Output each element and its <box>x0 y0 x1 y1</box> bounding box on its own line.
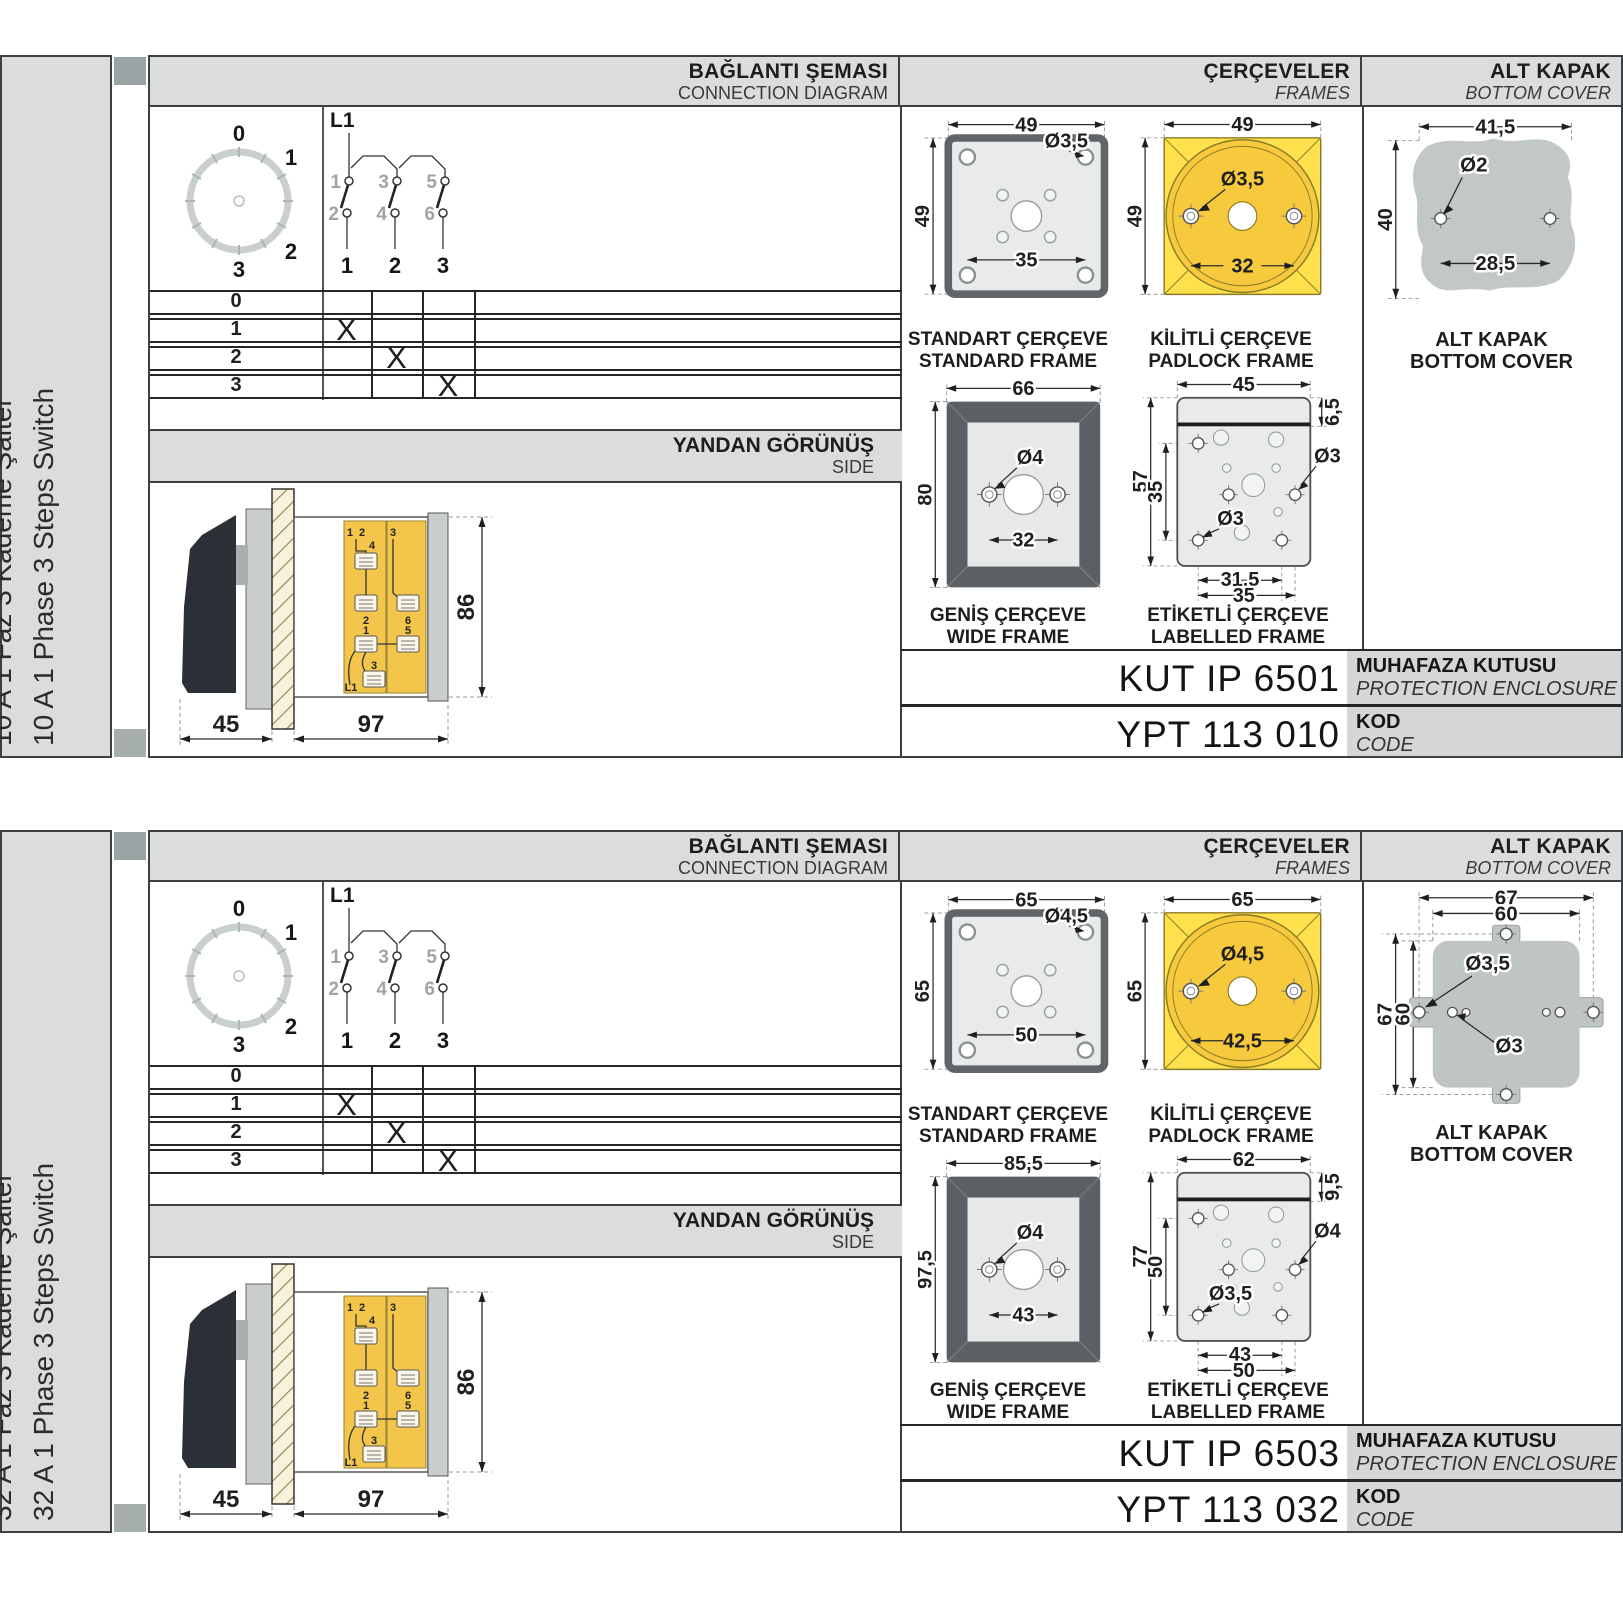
enclosure-label: MUHAFAZA KUTUSU PROTECTION ENCLOSURE <box>1347 1426 1621 1479</box>
svg-text:60: 60 <box>1391 1003 1414 1026</box>
switching-truth-table: 0 1 X 2 X 3 X <box>150 290 902 400</box>
svg-text:1: 1 <box>330 947 341 968</box>
svg-text:43: 43 <box>1012 1305 1034 1327</box>
wide-frame-caption: GENİŞ ÇERÇEVE WIDE FRAME <box>902 1380 1114 1424</box>
product-section-32a: 32 A 1 Faz 3 Kademe Şalter 32 A 1 Phase … <box>0 830 1623 1535</box>
svg-text:Ø4: Ø4 <box>1017 447 1044 469</box>
svg-text:2: 2 <box>328 979 339 1000</box>
svg-text:Ø4,5: Ø4,5 <box>1221 944 1264 966</box>
enclosure-code: KUT IP 6503 <box>900 1433 1340 1475</box>
dial-pos-1: 1 <box>285 145 297 170</box>
svg-text:1: 1 <box>363 1400 369 1412</box>
svg-text:3: 3 <box>390 527 396 539</box>
section-header-row: BAĞLANTI ŞEMASI CONNECTION DIAGRAM ÇERÇE… <box>150 57 1621 107</box>
svg-text:86: 86 <box>453 1369 480 1396</box>
svg-text:Ø4: Ø4 <box>1314 1220 1341 1242</box>
svg-text:Ø2: Ø2 <box>1460 154 1487 177</box>
order-code: YPT 113 032 <box>900 1489 1340 1531</box>
header-frames-en: FRAMES <box>900 83 1350 103</box>
svg-text:42,5: 42,5 <box>1223 1030 1262 1052</box>
svg-text:Ø3,5: Ø3,5 <box>1209 1283 1252 1305</box>
bottom-cover-drawing: 67 60 67 60 Ø3,5 Ø3 <box>1370 888 1615 1118</box>
svg-text:1: 1 <box>285 920 297 945</box>
header-connection-en: CONNECTION DIAGRAM <box>150 83 888 103</box>
standard-frame-drawing: 49 49 Ø3,5 35 <box>914 113 1114 323</box>
table-row: 0 <box>150 290 902 315</box>
table-row: 0 <box>150 1065 902 1090</box>
dim-height: 86 <box>453 594 480 621</box>
svg-text:35: 35 <box>1145 481 1167 503</box>
svg-text:40: 40 <box>1376 208 1397 231</box>
svg-text:45: 45 <box>213 1486 240 1513</box>
selector-dial-drawing: 0 1 2 3 <box>159 892 319 1060</box>
svg-text:3: 3 <box>371 1435 377 1447</box>
bottom-cover-caption: ALT KAPAK BOTTOM COVER <box>1362 329 1621 373</box>
dial-pos-0: 0 <box>233 121 245 146</box>
svg-text:9,5: 9,5 <box>1322 1173 1344 1201</box>
svg-text:L1: L1 <box>330 884 355 907</box>
table-row: 2 X <box>150 346 902 371</box>
contact-3: 3 <box>378 172 389 193</box>
svg-text:66: 66 <box>1012 378 1034 400</box>
svg-text:6,5: 6,5 <box>1322 398 1344 426</box>
contact-1: 1 <box>330 172 341 193</box>
wide-frame-drawing: 66 80 Ø4 32 <box>918 377 1108 595</box>
svg-text:49: 49 <box>1015 114 1037 136</box>
contact-6: 6 <box>424 204 435 225</box>
svg-text:L1: L1 <box>345 682 358 694</box>
svg-text:1: 1 <box>363 625 369 637</box>
header-connection-diagram: BAĞLANTI ŞEMASI CONNECTION DIAGRAM <box>150 832 900 882</box>
enclosure-code: KUT IP 6501 <box>900 658 1340 700</box>
svg-text:2: 2 <box>389 1028 401 1053</box>
svg-text:32: 32 <box>1231 255 1253 277</box>
product-title-en: 10 A 1 Phase 3 Steps Switch <box>28 388 60 746</box>
svg-text:60: 60 <box>1495 902 1518 925</box>
svg-text:45: 45 <box>1233 375 1255 396</box>
svg-text:2: 2 <box>285 1014 297 1039</box>
header-frames: ÇERÇEVELER FRAMES <box>900 57 1362 107</box>
svg-text:3: 3 <box>371 660 377 672</box>
catalog-page: 10 A 1 Faz 3 Kademe Şalter 10 A 1 Phase … <box>0 0 1623 1623</box>
standard-frame-caption: STANDART ÇERÇEVE STANDARD FRAME <box>902 329 1114 373</box>
connection-circuit-drawing: L1 1 3 5 2 4 6 1 2 3 <box>322 884 572 1069</box>
svg-text:35: 35 <box>1233 585 1255 603</box>
svg-text:85,5: 85,5 <box>1004 1153 1043 1175</box>
spine-tab-bottom <box>114 1504 146 1532</box>
svg-text:65: 65 <box>1015 889 1037 911</box>
wide-frame-drawing: 85,5 97,5 Ø4 43 <box>918 1152 1108 1370</box>
labelled-frame-caption: ETİKETLİ ÇERÇEVE LABELLED FRAME <box>1118 605 1358 649</box>
svg-text:Ø3: Ø3 <box>1495 1034 1522 1057</box>
contact-4: 4 <box>376 204 387 225</box>
svg-text:5: 5 <box>426 947 437 968</box>
wide-frame-caption: GENİŞ ÇERÇEVE WIDE FRAME <box>902 605 1114 649</box>
selector-dial-drawing: 0 1 2 3 <box>159 117 319 285</box>
header-bottom-cover: ALT KAPAK BOTTOM COVER <box>1362 832 1621 882</box>
pole-2: 2 <box>389 253 401 278</box>
section-content: BAĞLANTI ŞEMASI CONNECTION DIAGRAM ÇERÇE… <box>148 830 1623 1533</box>
svg-text:4: 4 <box>369 1315 376 1327</box>
header-frames: ÇERÇEVELER FRAMES <box>900 832 1362 882</box>
svg-text:1: 1 <box>347 1302 353 1314</box>
labelled-frame-drawing: 45 6,5 Ø3 57 35 Ø3 31,5 35 <box>1126 375 1354 603</box>
table-row: 3 X <box>150 374 902 399</box>
header-cover-tr: ALT KAPAK <box>1362 60 1611 83</box>
svg-text:41,5: 41,5 <box>1475 117 1515 139</box>
header-connection-diagram: BAĞLANTI ŞEMASI CONNECTION DIAGRAM <box>150 57 900 107</box>
svg-text:35: 35 <box>1015 250 1037 272</box>
side-view-drawing: 1 2 4 2 3 6 1 5 3 L1 45 97 86 <box>160 1262 720 1532</box>
code-row: YPT 113 010 KOD CODE <box>900 704 1621 756</box>
svg-text:3: 3 <box>233 1032 245 1057</box>
svg-text:Ø3,5: Ø3,5 <box>1045 131 1088 153</box>
side-view-title-tr: YANDAN GÖRÜNÜŞ <box>150 434 874 457</box>
spine-tab-top <box>114 57 146 85</box>
spine-tab-bottom <box>114 729 146 757</box>
contact-5: 5 <box>426 172 437 193</box>
svg-text:Ø4: Ø4 <box>1017 1222 1044 1244</box>
dial-pos-3: 3 <box>233 257 245 282</box>
sidebar-32a: 32 A 1 Faz 3 Kademe Şalter 32 A 1 Phase … <box>0 830 112 1533</box>
svg-text:3: 3 <box>390 1302 396 1314</box>
svg-text:49: 49 <box>1231 114 1253 136</box>
order-code: YPT 113 010 <box>900 714 1340 756</box>
header-frames-tr: ÇERÇEVELER <box>900 60 1350 83</box>
column-divider-2 <box>1362 107 1364 649</box>
code-row: YPT 113 032 KOD CODE <box>900 1479 1621 1531</box>
svg-text:Ø3: Ø3 <box>1314 445 1341 467</box>
svg-text:5: 5 <box>405 1400 411 1412</box>
side-view-band: YANDAN GÖRÜNÜŞ SIDE <box>150 1204 902 1258</box>
padlock-frame-drawing: 65 65 Ø4,5 42,5 <box>1126 888 1336 1098</box>
header-connection-tr: BAĞLANTI ŞEMASI <box>150 60 888 83</box>
labelled-frame-drawing: 62 9,5 Ø4 77 50 Ø3,5 43 50 <box>1126 1150 1354 1378</box>
svg-text:1: 1 <box>341 1028 353 1053</box>
spine-tab-top <box>114 832 146 860</box>
svg-text:0: 0 <box>233 896 245 921</box>
phase-label: L1 <box>330 109 355 132</box>
section-header-row: BAĞLANTI ŞEMASI CONNECTION DIAGRAM ÇERÇE… <box>150 832 1621 882</box>
bottom-cover-drawing: 41,5 40 Ø2 28,5 <box>1376 117 1601 322</box>
svg-text:Ø3,5: Ø3,5 <box>1221 169 1264 191</box>
svg-text:1: 1 <box>347 527 353 539</box>
switching-truth-table: 0 1 X 2 X 3 X <box>150 1065 902 1175</box>
svg-text:2: 2 <box>359 1302 365 1314</box>
padlock-frame-caption: KİLİTLİ ÇERÇEVE PADLOCK FRAME <box>1118 329 1344 373</box>
code-label: KOD CODE <box>1347 707 1621 756</box>
standard-frame-drawing: 65 65 Ø4,5 50 <box>914 888 1114 1098</box>
sidebar-10a: 10 A 1 Faz 3 Kademe Şalter 10 A 1 Phase … <box>0 55 112 758</box>
side-view-band: YANDAN GÖRÜNÜŞ SIDE <box>150 429 902 483</box>
svg-text:6: 6 <box>424 979 435 1000</box>
svg-text:50: 50 <box>1145 1256 1167 1278</box>
svg-text:Ø3,5: Ø3,5 <box>1465 952 1510 975</box>
table-row: 1 X <box>150 1093 902 1118</box>
pole-1: 1 <box>341 253 353 278</box>
svg-text:2: 2 <box>359 527 365 539</box>
svg-text:65: 65 <box>1231 889 1253 911</box>
svg-text:Ø4,5: Ø4,5 <box>1045 906 1088 928</box>
side-view-drawing: 1 2 4 2 3 6 1 5 3 L1 45 97 86 <box>160 487 720 757</box>
product-section-10a: 10 A 1 Faz 3 Kademe Şalter 10 A 1 Phase … <box>0 55 1623 760</box>
svg-text:4: 4 <box>376 979 387 1000</box>
table-row: 2 X <box>150 1121 902 1146</box>
svg-text:62: 62 <box>1233 1150 1255 1171</box>
svg-text:3: 3 <box>378 947 389 968</box>
code-label: KOD CODE <box>1347 1482 1621 1531</box>
header-cover-en: BOTTOM COVER <box>1362 83 1611 103</box>
dim-body-depth: 97 <box>358 711 385 738</box>
header-bottom-cover: ALT KAPAK BOTTOM COVER <box>1362 57 1621 107</box>
dial-pos-2: 2 <box>285 239 297 264</box>
enclosure-row: KUT IP 6503 MUHAFAZA KUTUSU PROTECTION E… <box>900 1424 1621 1479</box>
svg-text:Ø3: Ø3 <box>1217 508 1244 530</box>
svg-text:3: 3 <box>437 1028 449 1053</box>
section-content: BAĞLANTI ŞEMASI CONNECTION DIAGRAM ÇERÇE… <box>148 55 1623 758</box>
svg-text:97: 97 <box>358 1486 385 1513</box>
enclosure-label: MUHAFAZA KUTUSU PROTECTION ENCLOSURE <box>1347 651 1621 704</box>
svg-text:65: 65 <box>1126 980 1146 1002</box>
side-view-title-en: SIDE <box>150 457 874 477</box>
product-title-tr: 10 A 1 Faz 3 Kademe Şalter <box>0 397 18 746</box>
svg-text:50: 50 <box>1015 1025 1037 1047</box>
product-title-tr: 32 A 1 Faz 3 Kademe Şalter <box>0 1172 18 1521</box>
svg-text:5: 5 <box>405 625 411 637</box>
connection-circuit-drawing: L1 1 3 5 2 4 6 1 2 3 <box>322 109 572 294</box>
svg-text:28,5: 28,5 <box>1475 252 1515 275</box>
svg-text:49: 49 <box>1126 205 1146 227</box>
enclosure-row: KUT IP 6501 MUHAFAZA KUTUSU PROTECTION E… <box>900 649 1621 704</box>
svg-text:50: 50 <box>1233 1360 1255 1378</box>
svg-text:97,5: 97,5 <box>918 1250 936 1289</box>
svg-text:65: 65 <box>914 980 934 1002</box>
svg-text:80: 80 <box>918 483 936 505</box>
svg-text:L1: L1 <box>345 1457 358 1469</box>
standard-frame-caption: STANDART ÇERÇEVE STANDARD FRAME <box>902 1104 1114 1148</box>
dim-front-depth: 45 <box>213 711 240 738</box>
table-row: 3 X <box>150 1149 902 1174</box>
product-title-en: 32 A 1 Phase 3 Steps Switch <box>28 1163 60 1521</box>
svg-text:32: 32 <box>1012 530 1034 552</box>
pole-3: 3 <box>437 253 449 278</box>
padlock-frame-drawing: 49 49 Ø3,5 32 <box>1126 113 1336 323</box>
bottom-cover-caption: ALT KAPAK BOTTOM COVER <box>1362 1122 1621 1166</box>
contact-2: 2 <box>328 204 339 225</box>
labelled-frame-caption: ETİKETLİ ÇERÇEVE LABELLED FRAME <box>1118 1380 1358 1424</box>
table-row: 1 X <box>150 318 902 343</box>
svg-text:49: 49 <box>914 205 934 227</box>
svg-text:4: 4 <box>369 540 376 552</box>
padlock-frame-caption: KİLİTLİ ÇERÇEVE PADLOCK FRAME <box>1118 1104 1344 1148</box>
